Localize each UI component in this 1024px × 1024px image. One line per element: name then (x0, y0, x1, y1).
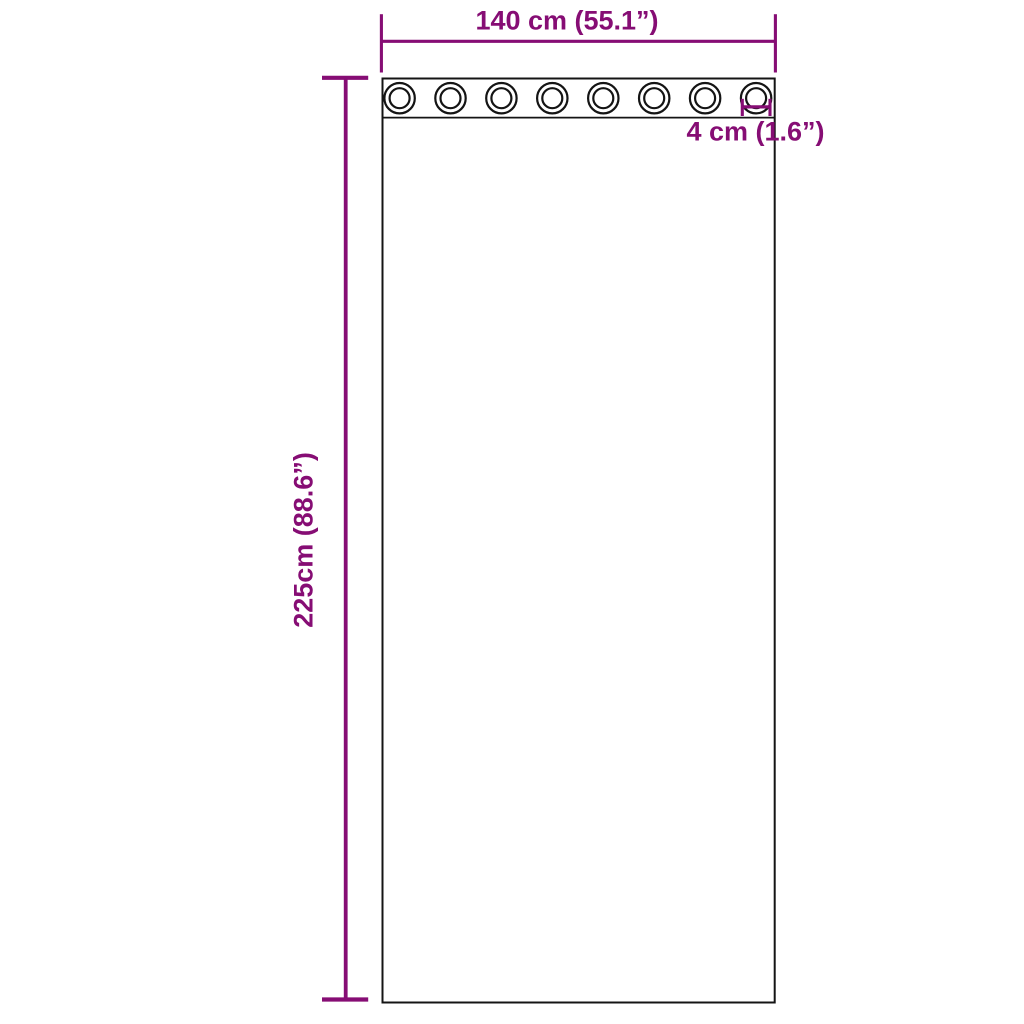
svg-text:140 cm (55.1”): 140 cm (55.1”) (475, 6, 658, 36)
svg-text:4 cm (1.6”): 4 cm (1.6”) (686, 117, 824, 147)
svg-text:225cm (88.6”): 225cm (88.6”) (289, 452, 319, 628)
